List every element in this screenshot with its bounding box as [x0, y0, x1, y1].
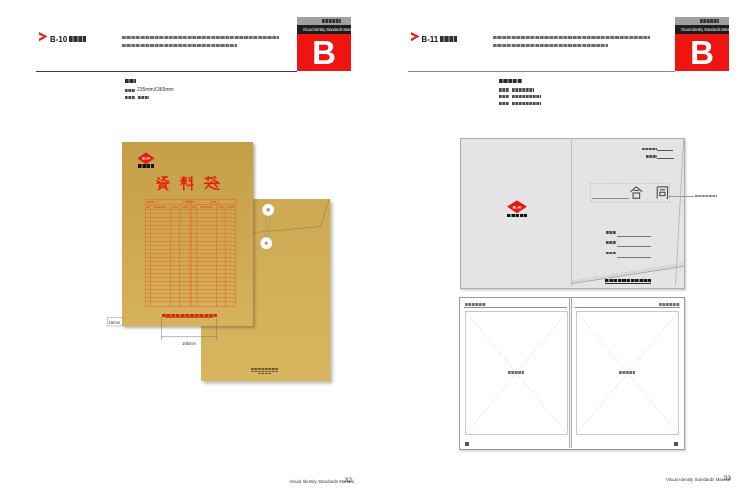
svg-text:105mm: 105mm: [182, 341, 196, 346]
svg-text:16mm: 16mm: [109, 320, 121, 325]
svg-text:BLHI: BLHI: [142, 156, 150, 160]
